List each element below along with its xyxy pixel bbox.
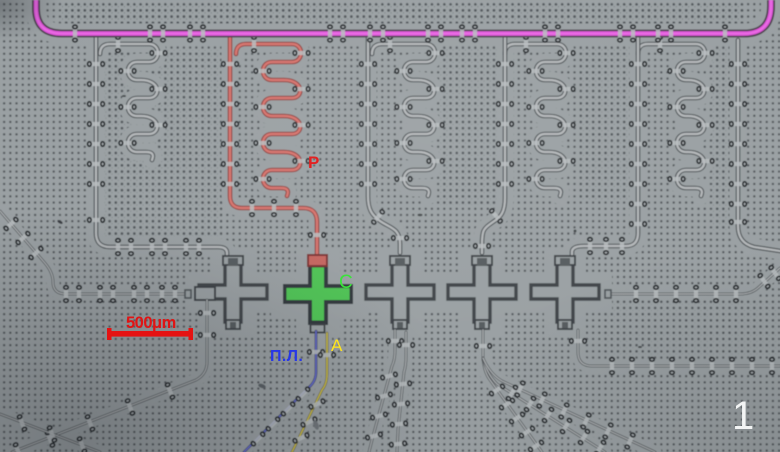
- svg-text:C: C: [339, 272, 353, 293]
- svg-text:П.Л.: П.Л.: [270, 348, 303, 365]
- svg-text:P: P: [308, 153, 319, 172]
- svg-text:500μm: 500μm: [126, 314, 176, 332]
- svg-text:A: A: [331, 336, 343, 355]
- svg-text:1: 1: [732, 394, 754, 438]
